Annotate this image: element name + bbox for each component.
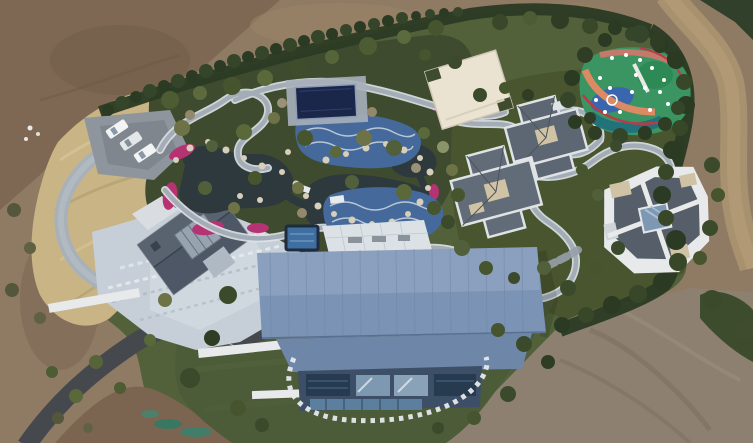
paint-mark bbox=[180, 427, 212, 437]
paint-mark bbox=[154, 419, 182, 429]
glass-band bbox=[310, 399, 422, 410]
pavilion-roof bbox=[286, 76, 368, 126]
spa-pool bbox=[286, 226, 318, 250]
aerial-photo bbox=[0, 0, 753, 443]
glass-window bbox=[356, 375, 390, 396]
aerial-photo-canvas bbox=[0, 0, 753, 443]
paint-mark bbox=[141, 410, 159, 418]
